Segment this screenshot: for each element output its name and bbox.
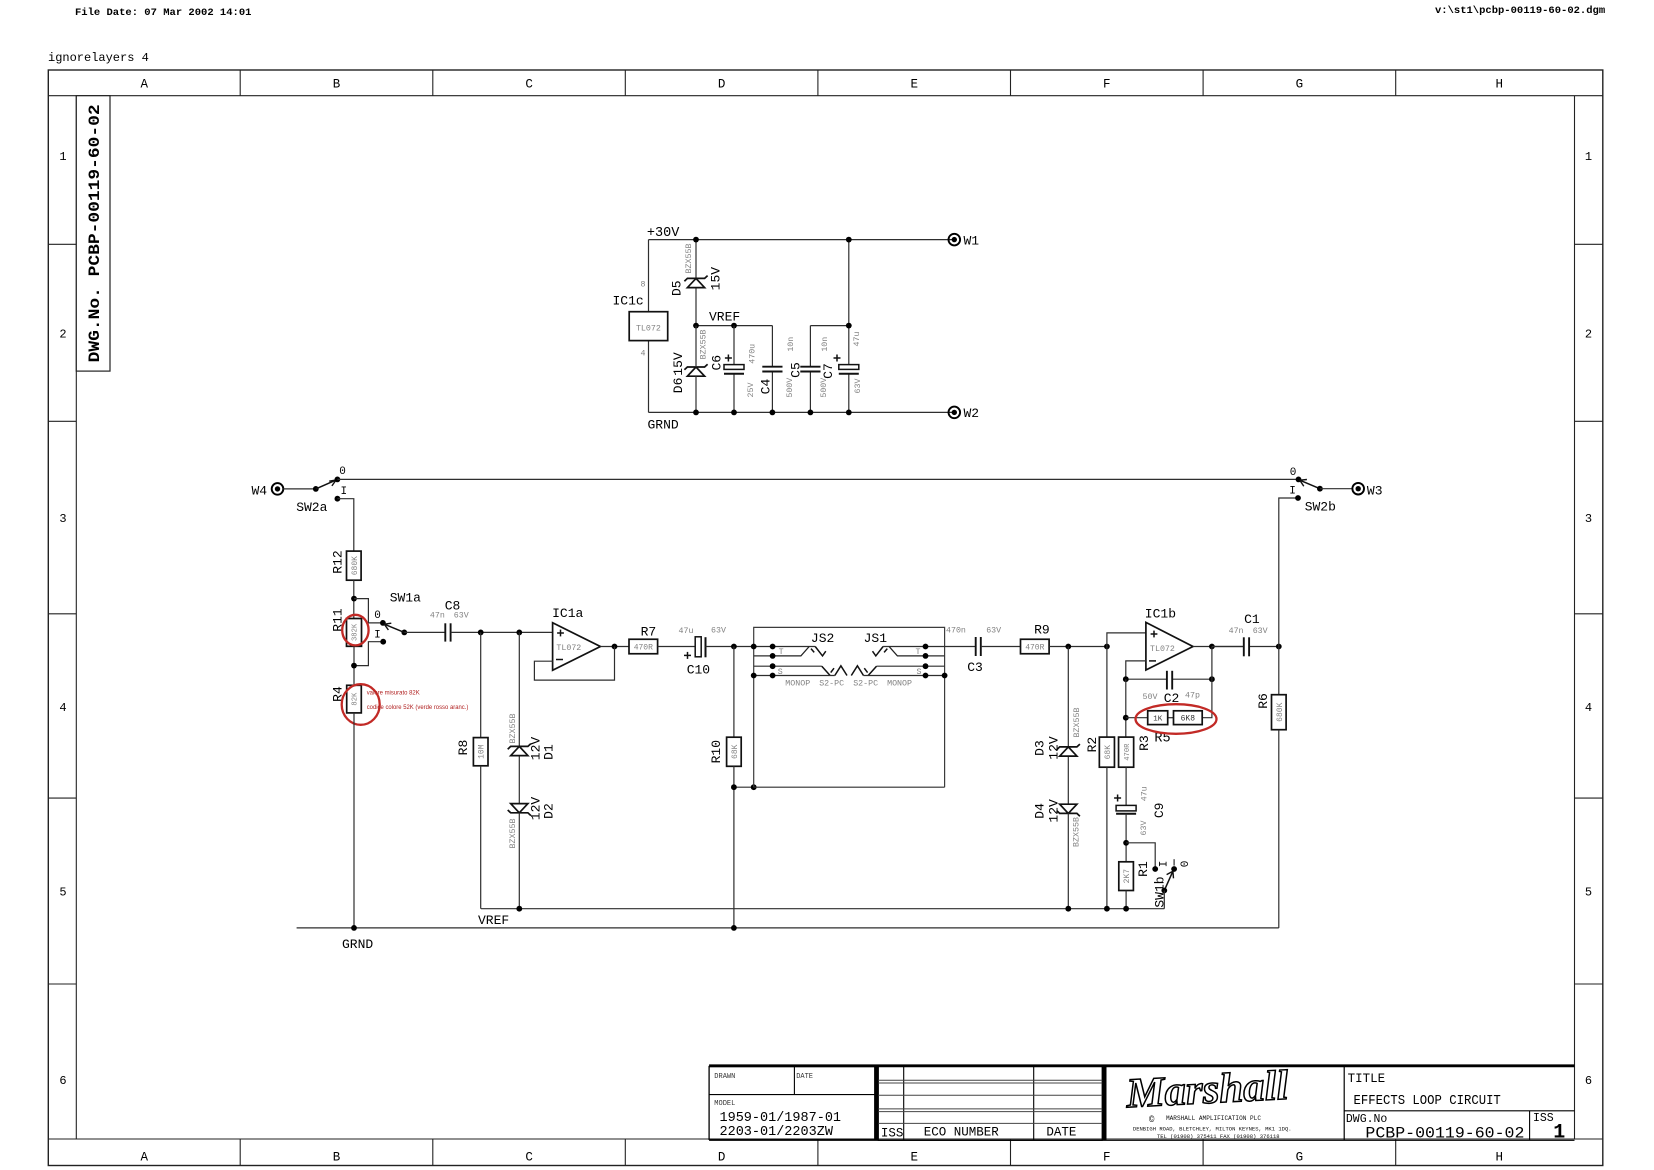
- svg-text:T: T: [916, 648, 921, 657]
- svg-text:D: D: [718, 1151, 726, 1165]
- svg-text:D4: D4: [1032, 803, 1047, 819]
- svg-text:I: I: [374, 629, 381, 641]
- svg-text:47u: 47u: [679, 627, 694, 636]
- svg-text:R6: R6: [1256, 693, 1271, 709]
- svg-text:ignorelayers 4: ignorelayers 4: [48, 51, 149, 65]
- svg-text:H: H: [1496, 1151, 1504, 1165]
- svg-text:H: H: [1496, 78, 1504, 92]
- svg-text:6K8: 6K8: [1181, 715, 1196, 724]
- svg-text:2K7: 2K7: [1123, 869, 1132, 884]
- svg-text:47n: 47n: [430, 612, 445, 621]
- svg-text:BZX55B: BZX55B: [685, 244, 694, 274]
- svg-text:E: E: [910, 1151, 918, 1165]
- svg-text:IC1c: IC1c: [613, 294, 644, 309]
- svg-text:TITLE: TITLE: [1348, 1072, 1386, 1086]
- svg-text:R12: R12: [330, 550, 345, 573]
- svg-text:BZX55B: BZX55B: [1073, 817, 1082, 847]
- svg-text:3: 3: [59, 512, 66, 526]
- svg-text:63V: 63V: [854, 379, 863, 394]
- svg-text:47u: 47u: [1140, 786, 1149, 801]
- svg-text:SW1b: SW1b: [1153, 876, 1168, 907]
- svg-text:4: 4: [1585, 701, 1592, 715]
- svg-text:B: B: [333, 78, 341, 92]
- svg-text:DENBIGH ROAD, BLETCHLEY, MILTO: DENBIGH ROAD, BLETCHLEY, MILTON KEYNES, …: [1133, 1126, 1292, 1133]
- svg-text:W3: W3: [1367, 483, 1383, 498]
- svg-text:DWG.No. PCBP-00119-60-02: DWG.No. PCBP-00119-60-02: [86, 104, 104, 362]
- svg-text:R9: R9: [1034, 623, 1050, 638]
- svg-text:470R: 470R: [1124, 743, 1132, 761]
- svg-text:5: 5: [1585, 886, 1592, 900]
- svg-text:470R: 470R: [1025, 643, 1044, 652]
- svg-text:15V: 15V: [708, 267, 723, 291]
- svg-text:VREF: VREF: [478, 913, 509, 928]
- svg-text:2: 2: [1585, 328, 1592, 342]
- svg-text:©: ©: [1149, 1115, 1155, 1125]
- svg-text:BZX55B: BZX55B: [700, 329, 709, 359]
- svg-text:680K: 680K: [351, 556, 360, 575]
- svg-text:1K: 1K: [1153, 716, 1163, 724]
- svg-text:R7: R7: [641, 625, 657, 640]
- svg-text:JS2: JS2: [811, 631, 834, 646]
- svg-text:1959-01/1987-01: 1959-01/1987-01: [720, 1111, 842, 1126]
- svg-text:C4: C4: [758, 379, 773, 395]
- svg-text:BZX55B: BZX55B: [509, 714, 518, 744]
- svg-text:EFFECTS LOOP CIRCUIT: EFFECTS LOOP CIRCUIT: [1354, 1094, 1501, 1109]
- svg-text:63V: 63V: [986, 627, 1001, 636]
- svg-text:PCBP-00119-60-02: PCBP-00119-60-02: [1365, 1124, 1524, 1142]
- svg-text:4: 4: [641, 350, 646, 359]
- svg-text:SW1a: SW1a: [390, 590, 421, 605]
- svg-text:10n: 10n: [787, 337, 796, 352]
- svg-text:50V: 50V: [1143, 693, 1158, 702]
- svg-text:D2: D2: [541, 803, 556, 819]
- svg-text:E: E: [910, 78, 918, 92]
- svg-text:R2: R2: [1085, 737, 1100, 753]
- svg-text:S: S: [778, 668, 783, 677]
- svg-text:12V: 12V: [1046, 799, 1061, 823]
- svg-text:C3: C3: [967, 660, 983, 675]
- svg-text:W2: W2: [964, 406, 980, 421]
- svg-text:63V: 63V: [1253, 627, 1268, 636]
- svg-text:2203-01/2203ZW: 2203-01/2203ZW: [720, 1125, 834, 1140]
- svg-text:I: I: [1289, 486, 1296, 498]
- svg-text:TEL (01908) 375411 FAX (01908): TEL (01908) 375411 FAX (01908) 376118: [1157, 1133, 1280, 1140]
- svg-text:8: 8: [641, 281, 646, 290]
- svg-text:G: G: [1296, 1151, 1304, 1165]
- svg-text:ISS: ISS: [1533, 1112, 1554, 1125]
- svg-text:T: T: [779, 648, 784, 657]
- svg-text:C6: C6: [709, 355, 724, 371]
- svg-text:A: A: [140, 1151, 148, 1165]
- svg-text:C7: C7: [821, 363, 836, 379]
- svg-text:A: A: [140, 78, 148, 92]
- svg-text:Marshall: Marshall: [1124, 1063, 1290, 1117]
- svg-text:+30V: +30V: [647, 226, 680, 241]
- svg-text:C9: C9: [1152, 802, 1167, 818]
- svg-text:D: D: [718, 78, 726, 92]
- svg-text:47n: 47n: [1229, 627, 1244, 636]
- svg-text:F: F: [1103, 1151, 1111, 1165]
- svg-text:IC1b: IC1b: [1145, 607, 1176, 622]
- svg-text:BZX55B: BZX55B: [1073, 708, 1082, 738]
- svg-text:MONOP: MONOP: [887, 679, 912, 688]
- svg-text:ISS: ISS: [881, 1126, 904, 1140]
- svg-text:C1: C1: [1244, 612, 1260, 627]
- svg-text:S2-PC: S2-PC: [853, 679, 878, 688]
- svg-text:5: 5: [59, 886, 66, 900]
- svg-text:DRAWN: DRAWN: [714, 1073, 735, 1081]
- svg-text:valore misurato 82K: valore misurato 82K: [367, 690, 420, 697]
- svg-text:W4: W4: [252, 484, 268, 499]
- svg-text:GRND: GRND: [648, 418, 679, 433]
- svg-text:DATE: DATE: [1046, 1126, 1076, 1140]
- svg-text:25V: 25V: [747, 383, 756, 398]
- svg-text:0: 0: [374, 610, 381, 622]
- svg-text:W1: W1: [964, 233, 980, 248]
- svg-text:S2-PC: S2-PC: [819, 679, 844, 688]
- svg-text:R1: R1: [1136, 861, 1151, 877]
- svg-text:S: S: [917, 668, 922, 677]
- svg-text:TL072: TL072: [636, 324, 661, 333]
- svg-text:0: 0: [1290, 467, 1297, 479]
- svg-text:IC1a: IC1a: [552, 606, 583, 621]
- svg-text:500V: 500V: [786, 378, 795, 398]
- svg-text:C10: C10: [687, 663, 710, 678]
- svg-text:GRND: GRND: [342, 937, 373, 952]
- svg-text:680K: 680K: [1276, 702, 1285, 721]
- svg-text:10M: 10M: [478, 744, 487, 759]
- svg-text:C: C: [525, 1151, 533, 1165]
- svg-text:C5: C5: [788, 362, 803, 378]
- svg-text:R8: R8: [456, 740, 471, 756]
- svg-text:382K: 382K: [352, 623, 360, 641]
- svg-text:68K: 68K: [731, 744, 740, 759]
- svg-text:R10: R10: [709, 740, 724, 763]
- svg-text:1: 1: [1553, 1122, 1565, 1145]
- svg-text:68K: 68K: [1104, 745, 1113, 760]
- svg-text:I: I: [340, 486, 347, 498]
- svg-text:v:\st1\pcbp-00119-60-02.dgm: v:\st1\pcbp-00119-60-02.dgm: [1435, 5, 1605, 17]
- svg-text:JS1: JS1: [864, 631, 888, 646]
- svg-text:3: 3: [1585, 512, 1592, 526]
- svg-text:DATE: DATE: [796, 1073, 813, 1081]
- svg-text:82K: 82K: [352, 692, 360, 706]
- svg-text:D3: D3: [1032, 740, 1047, 756]
- svg-text:0: 0: [339, 466, 346, 478]
- svg-text:12V: 12V: [1046, 736, 1061, 760]
- svg-text:ECO NUMBER: ECO NUMBER: [924, 1126, 1000, 1140]
- svg-text:TL072: TL072: [556, 644, 581, 653]
- svg-text:63V: 63V: [711, 627, 726, 636]
- svg-text:D1: D1: [541, 744, 556, 760]
- svg-text:BZX55B: BZX55B: [509, 819, 518, 849]
- svg-text:4: 4: [59, 701, 66, 715]
- svg-text:470R: 470R: [634, 643, 653, 652]
- svg-text:10n: 10n: [821, 337, 830, 352]
- svg-text:G: G: [1296, 78, 1304, 92]
- svg-text:codice colore 52K (verde rosso: codice colore 52K (verde rosso aranc.): [367, 704, 469, 711]
- svg-text:15V: 15V: [671, 352, 686, 376]
- svg-text:6: 6: [1585, 1074, 1592, 1088]
- svg-text:MARSHALL AMPLIFICATION PLC: MARSHALL AMPLIFICATION PLC: [1166, 1115, 1261, 1122]
- svg-text:500V: 500V: [820, 378, 829, 398]
- svg-text:MODEL: MODEL: [714, 1100, 735, 1108]
- svg-text:R3: R3: [1137, 735, 1152, 751]
- svg-text:2: 2: [59, 328, 66, 342]
- svg-text:TL072: TL072: [1150, 645, 1175, 654]
- svg-text:470n: 470n: [946, 627, 966, 636]
- svg-text:D5: D5: [669, 280, 684, 296]
- svg-text:F: F: [1103, 78, 1111, 92]
- svg-text:1: 1: [1585, 150, 1592, 164]
- svg-text:63V: 63V: [454, 612, 469, 621]
- svg-text:D6: D6: [671, 378, 686, 394]
- svg-text:I: I: [1159, 861, 1171, 868]
- svg-text:47u: 47u: [853, 332, 862, 347]
- svg-text:47p: 47p: [1185, 692, 1200, 701]
- svg-text:MONOP: MONOP: [785, 679, 810, 688]
- svg-text:63V: 63V: [1140, 821, 1149, 836]
- svg-text:VREF: VREF: [709, 309, 740, 324]
- svg-text:File Date: 07 Mar 2002 14:01: File Date: 07 Mar 2002 14:01: [75, 7, 251, 19]
- svg-text:B: B: [333, 1151, 341, 1165]
- svg-text:470u: 470u: [748, 344, 757, 364]
- svg-text:SW2a: SW2a: [296, 500, 327, 515]
- svg-text:0: 0: [1180, 861, 1192, 868]
- svg-text:6: 6: [59, 1074, 66, 1088]
- svg-text:C: C: [525, 78, 533, 92]
- svg-text:SW2b: SW2b: [1305, 500, 1336, 515]
- svg-text:1: 1: [59, 150, 66, 164]
